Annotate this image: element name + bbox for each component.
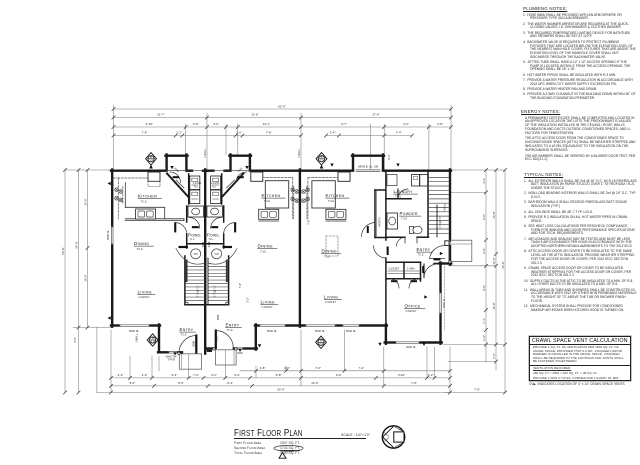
svg-text:LIVING: LIVING [261,300,275,305]
svg-text:3'-0": 3'-0" [73,337,77,343]
svg-text:8'-4": 8'-4" [227,381,233,385]
svg-text:LAUN: LAUN [193,181,201,185]
svg-text:34'-0": 34'-0" [501,261,505,268]
svg-text:4040 SL: 4040 SL [406,345,417,349]
svg-text:4040 SL: 4040 SL [442,297,446,308]
svg-text:1-4SH: 1-4SH [407,267,415,271]
svg-text:3'-10": 3'-10" [398,373,405,377]
svg-text:TILE: TILE [328,199,334,203]
svg-text:KITCHEN: KITCHEN [262,193,281,198]
svg-text:7'-8": 7'-8" [411,381,417,385]
svg-text:1'-2": 1'-2" [176,131,182,135]
svg-text:CARPET: CARPET [139,295,151,299]
svg-text:4'-2": 4'-2" [403,122,409,126]
svg-text:17R@7.5": 17R@7.5" [438,216,442,228]
svg-text:62'-0": 62'-0" [278,104,286,108]
svg-text:7'-6": 7'-6" [307,219,311,224]
svg-text:OFFICE: OFFICE [405,304,421,309]
svg-text:9'-8": 9'-8" [482,214,486,220]
svg-text:LAUN: LAUN [211,181,219,185]
svg-text:2'-4": 2'-4" [330,131,336,135]
svg-text:ENTRY: ENTRY [180,327,194,332]
svg-text:3068: 3068 [215,336,219,342]
svg-text:TILE: TILE [181,333,187,337]
svg-text:3068: 3068 [192,341,196,347]
svg-text:ENTRY: ENTRY [226,323,240,328]
svg-text:7'-4": 7'-4" [482,318,486,324]
svg-text:21'-7": 21'-7" [157,113,164,117]
svg-text:11'-6": 11'-6" [251,113,258,117]
svg-text:4'-6": 4'-6" [284,366,290,370]
svg-text:3'-2": 3'-2" [211,373,217,377]
svg-text:ENTRY: ENTRY [417,247,431,252]
svg-text:3'-8": 3'-8" [437,122,443,126]
svg-text:24'-0": 24'-0" [311,381,318,385]
svg-text:TILE.: TILE. [208,237,214,241]
svg-text:WH: WH [194,253,198,256]
svg-text:TILE: TILE [418,253,424,257]
svg-text:ℓ WALL: ℓ WALL [297,148,301,158]
svg-text:7'-6": 7'-6" [266,131,272,135]
svg-text:7'-8": 7'-8" [474,388,480,392]
svg-text:3'-2": 3'-2" [246,297,250,302]
svg-text:TILE: TILE [137,247,143,251]
svg-text:1'-2": 1'-2" [236,131,242,135]
svg-text:7'-4": 7'-4" [238,283,242,288]
svg-text:POWD.: POWD. [207,233,221,238]
svg-text:POWD.: POWD. [188,233,202,238]
svg-text:TYP09: TYP09 [167,358,175,361]
svg-text:12'-1": 12'-1" [263,122,270,126]
svg-text:KITCHEN: KITCHEN [326,193,345,198]
svg-text:7'-8": 7'-8" [142,131,148,135]
svg-text:62'-4": 62'-4" [277,388,284,392]
svg-text:TILE: TILE [227,328,233,332]
svg-text:3'-2": 3'-2" [428,373,434,377]
svg-text:9'-8": 9'-8" [482,285,486,291]
svg-text:7'-0": 7'-0" [315,366,321,370]
svg-text:TILE: TILE [401,217,407,221]
svg-text:ℓ WALL: ℓ WALL [135,333,139,342]
svg-text:14'-6": 14'-6" [492,257,496,264]
svg-text:7'-4": 7'-4" [396,131,402,135]
svg-text:8'-0": 8'-0" [178,381,184,385]
svg-text:17R@7.5": 17R@7.5" [196,285,200,297]
svg-text:TILE: TILE [395,195,401,199]
svg-text:POWDER: POWDER [400,211,418,216]
svg-text:LIVING: LIVING [138,290,152,295]
svg-text:9'-7": 9'-7" [341,122,347,126]
svg-text:TILE: TILE [212,186,217,189]
svg-text:9'-2": 9'-2" [234,373,240,377]
svg-text:5040 SL: 5040 SL [106,229,110,240]
svg-text:TILE.: TILE. [190,237,196,241]
svg-text:CARPET: CARPET [262,305,274,309]
svg-text:2668: 2668 [237,167,243,173]
svg-text:CARPET: CARPET [325,300,337,304]
svg-text:16'-8": 16'-8" [492,211,496,218]
svg-text:27'-6": 27'-6" [372,113,379,117]
svg-text:7'-4": 7'-4" [358,366,364,370]
svg-text:17R@7.5": 17R@7.5" [212,285,216,297]
svg-text:5040 SL: 5040 SL [129,329,140,333]
svg-text:5040 SL: 5040 SL [315,329,326,333]
svg-text:ℓ WALL: ℓ WALL [443,203,447,212]
svg-text:TILE: TILE [194,186,199,189]
svg-text:ℓ WALL: ℓ WALL [203,148,207,158]
svg-text:4'-6": 4'-6" [118,373,124,377]
svg-text:3'-6": 3'-6" [213,122,219,126]
svg-text:1'-6": 1'-6" [492,353,496,359]
svg-text:9'-0": 9'-0" [130,381,136,385]
svg-text:DINING: DINING [258,244,273,249]
svg-text:9'-4": 9'-4" [172,373,178,377]
svg-text:CARPET: CARPET [406,309,418,313]
svg-text:24'-8": 24'-8" [74,241,78,248]
svg-text:DINING: DINING [134,241,149,246]
svg-text:2468: 2468 [202,241,205,247]
svg-text:14'-6": 14'-6" [83,198,87,205]
svg-text:8'-8": 8'-8" [276,373,282,377]
svg-text:WH: WH [215,253,219,256]
svg-text:16'-8": 16'-8" [492,302,496,309]
svg-text:LAUNDRY: LAUNDRY [394,189,414,194]
svg-text:3'-10": 3'-10" [146,122,153,126]
svg-text:KITCHEN: KITCHEN [138,194,157,199]
svg-text:4'-8": 4'-8" [260,366,266,370]
svg-text:4'-2": 4'-2" [482,178,486,184]
svg-text:5030: 5030 [237,352,243,355]
svg-text:TILE: TILE [260,250,266,254]
svg-text:4'-6": 4'-6" [142,373,148,377]
svg-text:TILE: TILE [141,200,147,204]
svg-text:2468: 2468 [208,241,211,247]
svg-text:TILE: TILE [324,255,330,259]
svg-text:8'-2": 8'-2" [387,154,391,159]
svg-text:3068: 3068 [217,314,220,320]
svg-text:5040 SL: 5040 SL [267,329,278,333]
svg-text:LIVING: LIVING [324,295,338,300]
svg-text:7'-6": 7'-6" [193,373,199,377]
svg-text:3'-6": 3'-6" [193,122,199,126]
svg-text:9'-6": 9'-6" [336,373,342,377]
svg-text:1'-6": 1'-6" [482,335,486,341]
svg-text:CLOSET: CLOSET [389,267,400,271]
svg-text:2'-8": 2'-8" [482,248,486,254]
svg-text:TILE: TILE [264,199,270,203]
svg-text:WDW B. GL. OB: WDW B. GL. OB [358,164,378,168]
svg-text:14'-6": 14'-6" [83,274,87,281]
svg-text:5040 SL: 5040 SL [346,329,357,333]
svg-text:54'-0": 54'-0" [61,247,65,254]
svg-text:PANTRY: PANTRY [378,217,381,227]
svg-text:DINING: DINING [322,249,337,254]
